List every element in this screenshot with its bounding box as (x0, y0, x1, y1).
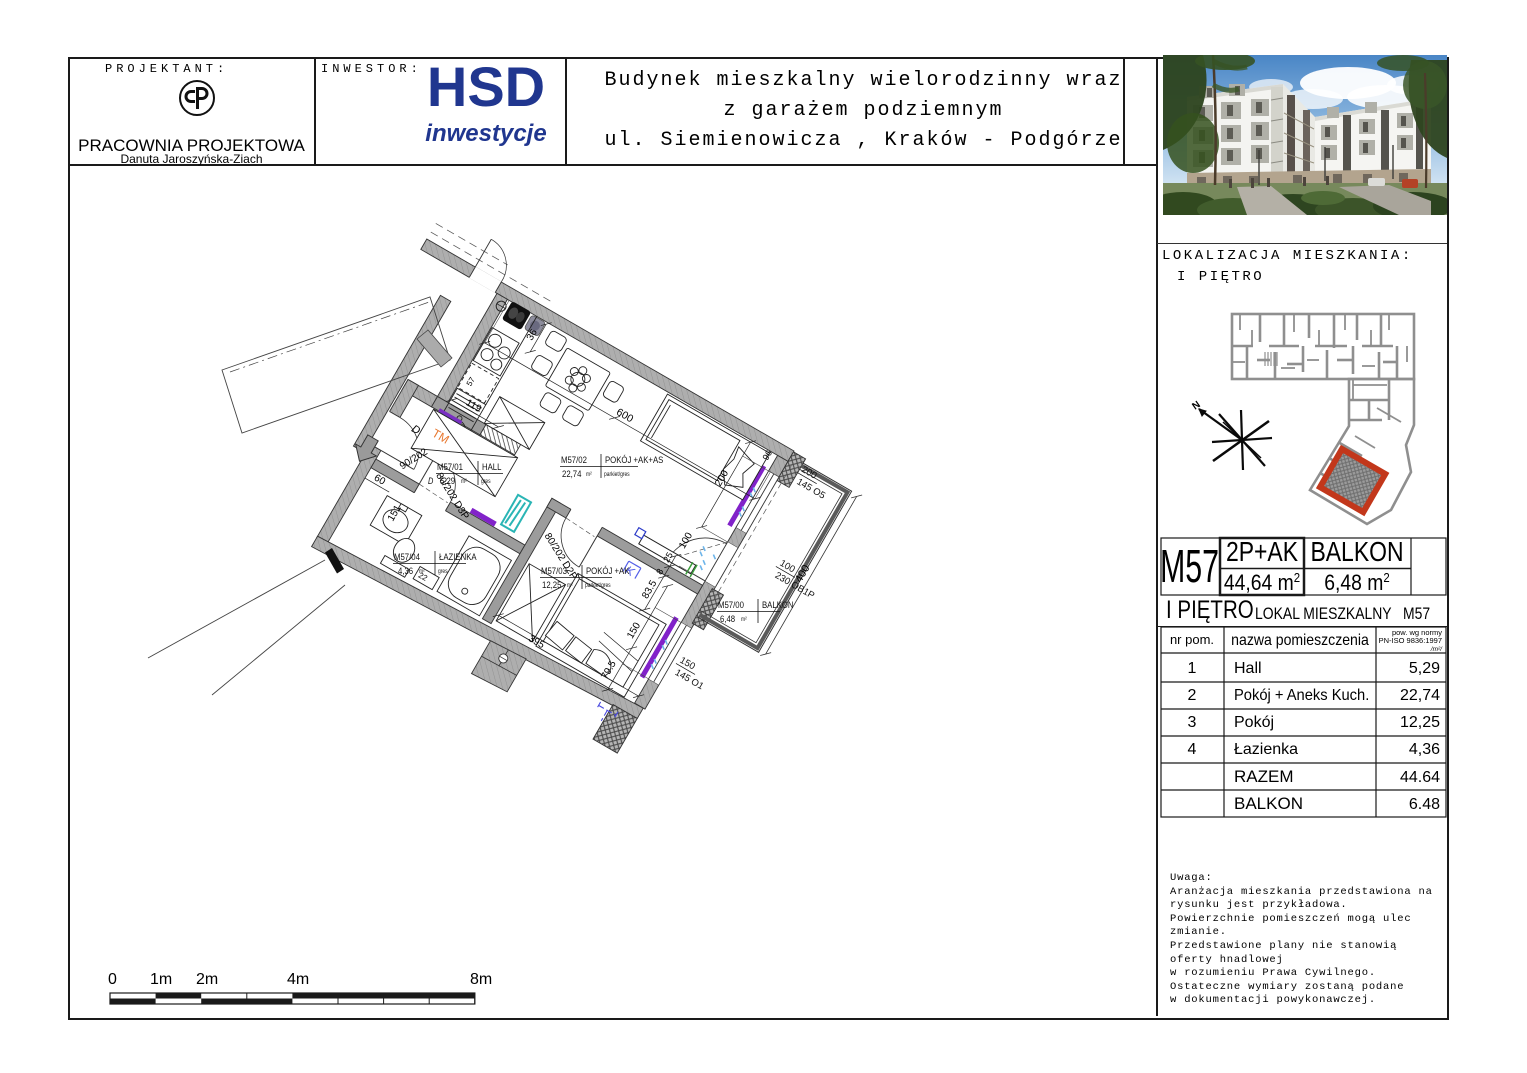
svg-text:22,74: 22,74 (562, 468, 582, 479)
svg-text:gres: gres (438, 569, 448, 576)
svg-text:m²: m² (586, 472, 592, 479)
svg-text:m²: m² (419, 569, 425, 576)
svg-text:BALKON: BALKON (762, 599, 794, 610)
svg-text:M57/04: M57/04 (394, 551, 420, 562)
svg-text:6,48: 6,48 (720, 613, 735, 624)
svg-text:M57/01: M57/01 (437, 461, 463, 472)
svg-text:parkiet/gres: parkiet/gres (604, 472, 630, 479)
svg-text:m²: m² (461, 479, 467, 486)
svg-text:m²: m² (741, 617, 747, 624)
svg-text:M57/02: M57/02 (561, 454, 587, 465)
svg-text:12,25: 12,25 (542, 579, 562, 590)
svg-text:M57/00: M57/00 (718, 599, 744, 610)
svg-text:POKÓJ +AK+AS: POKÓJ +AK+AS (605, 454, 664, 465)
svg-text:m²: m² (567, 583, 573, 590)
svg-text:parkiet/gres: parkiet/gres (585, 583, 611, 590)
svg-text:5,29: 5,29 (440, 475, 455, 486)
svg-text:D: D (428, 476, 433, 486)
svg-text:4,36: 4,36 (398, 565, 413, 576)
svg-text:ŁAZIENKA: ŁAZIENKA (439, 551, 477, 562)
svg-text:POKÓJ +AK: POKÓJ +AK (586, 565, 630, 576)
svg-text:HALL: HALL (482, 461, 502, 472)
svg-text:gres: gres (481, 479, 491, 486)
svg-text:M57/03: M57/03 (541, 565, 567, 576)
